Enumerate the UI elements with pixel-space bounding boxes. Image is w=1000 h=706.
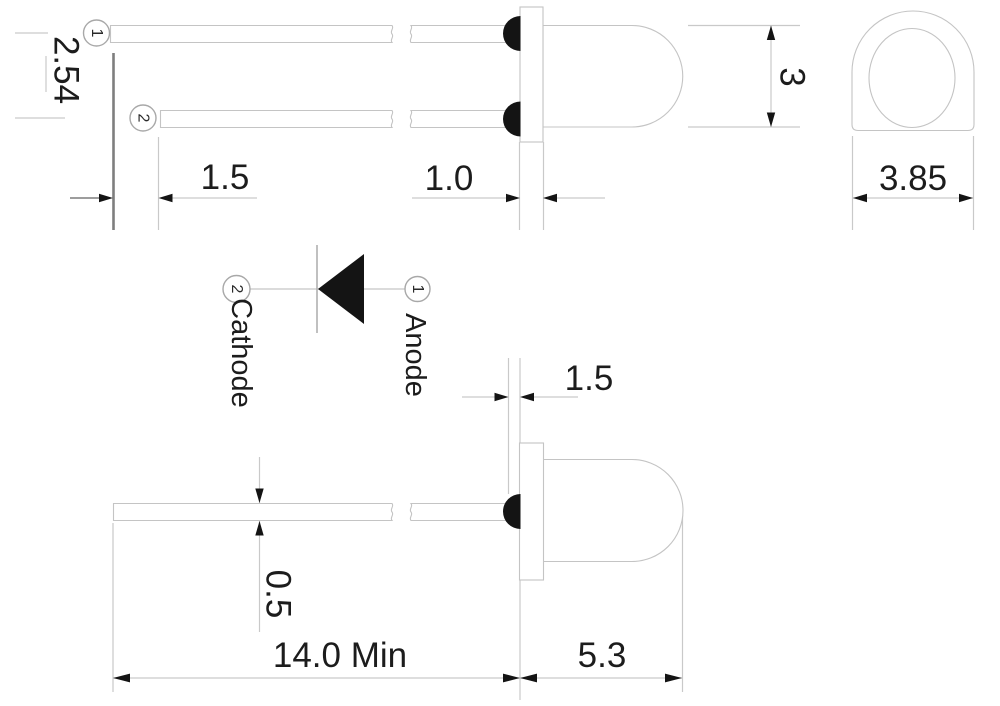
drawing-svg: 2.54 1 2 1.5 1.0 <box>0 0 1000 706</box>
anode-label: Anode <box>399 313 431 397</box>
dim-standoff-arrow-left <box>495 393 509 401</box>
dome-outline-top-view <box>869 29 955 128</box>
dim-lead-length-arrow-left <box>113 674 130 683</box>
cathode-lead-segment-b <box>410 111 505 128</box>
anode-lead-segment-b <box>410 26 505 43</box>
dim-flange-thickness-arrow-right <box>543 194 557 202</box>
led-body-dome <box>543 26 683 128</box>
dim-body-length-label: 5.3 <box>578 636 627 675</box>
dim-flange-dia-arrow-right <box>959 194 973 202</box>
schematic-symbol: 2 1 Cathode Anode <box>223 245 431 408</box>
lead-bump-bottom <box>503 494 521 529</box>
dim-body-length-arrow-left <box>520 674 537 683</box>
led-flange <box>520 7 543 142</box>
dim-flange-thickness-label: 1.0 <box>425 159 474 198</box>
dim-flange-thickness-arrow-left <box>506 194 520 202</box>
diode-triangle <box>318 254 364 324</box>
dim-lead-offset-label: 1.5 <box>201 158 250 197</box>
dim-body-dia-arrow-bottom <box>767 113 775 128</box>
anode-lead-bump <box>503 16 521 51</box>
dim-lead-length-label: 14.0 Min <box>273 636 407 675</box>
lead-segment-b <box>410 504 505 521</box>
led-mechanical-drawing: 2.54 1 2 1.5 1.0 <box>0 0 1000 706</box>
led-flange-bottom <box>520 443 544 580</box>
anode-lead-segment-a <box>111 26 393 43</box>
pin1-number: 1 <box>88 29 105 38</box>
schematic-pin2-number: 2 <box>228 285 245 294</box>
dim-body-dia-label: 3 <box>773 67 812 86</box>
top-view: 3.85 <box>852 11 974 230</box>
dim-standoff-arrow-right <box>520 393 534 401</box>
cathode-lead-bump <box>503 102 521 137</box>
dim-lead-offset-arrow-left <box>99 194 113 202</box>
dim-lead-pitch-label: 2.54 <box>47 36 86 104</box>
bottom-side-view: 1.5 0.5 14.0 Min 5.3 <box>113 358 683 700</box>
dim-standoff-label: 1.5 <box>565 359 614 398</box>
cathode-label: Cathode <box>225 298 257 408</box>
dim-body-dia-arrow-top <box>767 26 775 41</box>
dim-lead-offset-arrow-right <box>159 194 173 202</box>
dim-flange-dia-arrow-left <box>853 194 867 202</box>
dim-lead-thickness-arrow-top <box>255 489 263 504</box>
dim-lead-thickness-label: 0.5 <box>259 570 298 619</box>
led-body-dome-bottom <box>543 460 683 562</box>
dim-lead-length-arrow-right <box>503 674 520 683</box>
pin2-number: 2 <box>135 114 152 123</box>
dim-body-length-arrow-right <box>665 674 682 683</box>
cathode-lead-segment-a <box>161 111 393 128</box>
dim-flange-dia-label: 3.85 <box>879 159 947 198</box>
dim-lead-thickness-arrow-bottom <box>255 521 263 536</box>
lead-segment-a <box>114 504 393 521</box>
schematic-pin1-number: 1 <box>409 285 426 294</box>
side-view: 2.54 1 2 1.5 1.0 <box>15 7 812 230</box>
